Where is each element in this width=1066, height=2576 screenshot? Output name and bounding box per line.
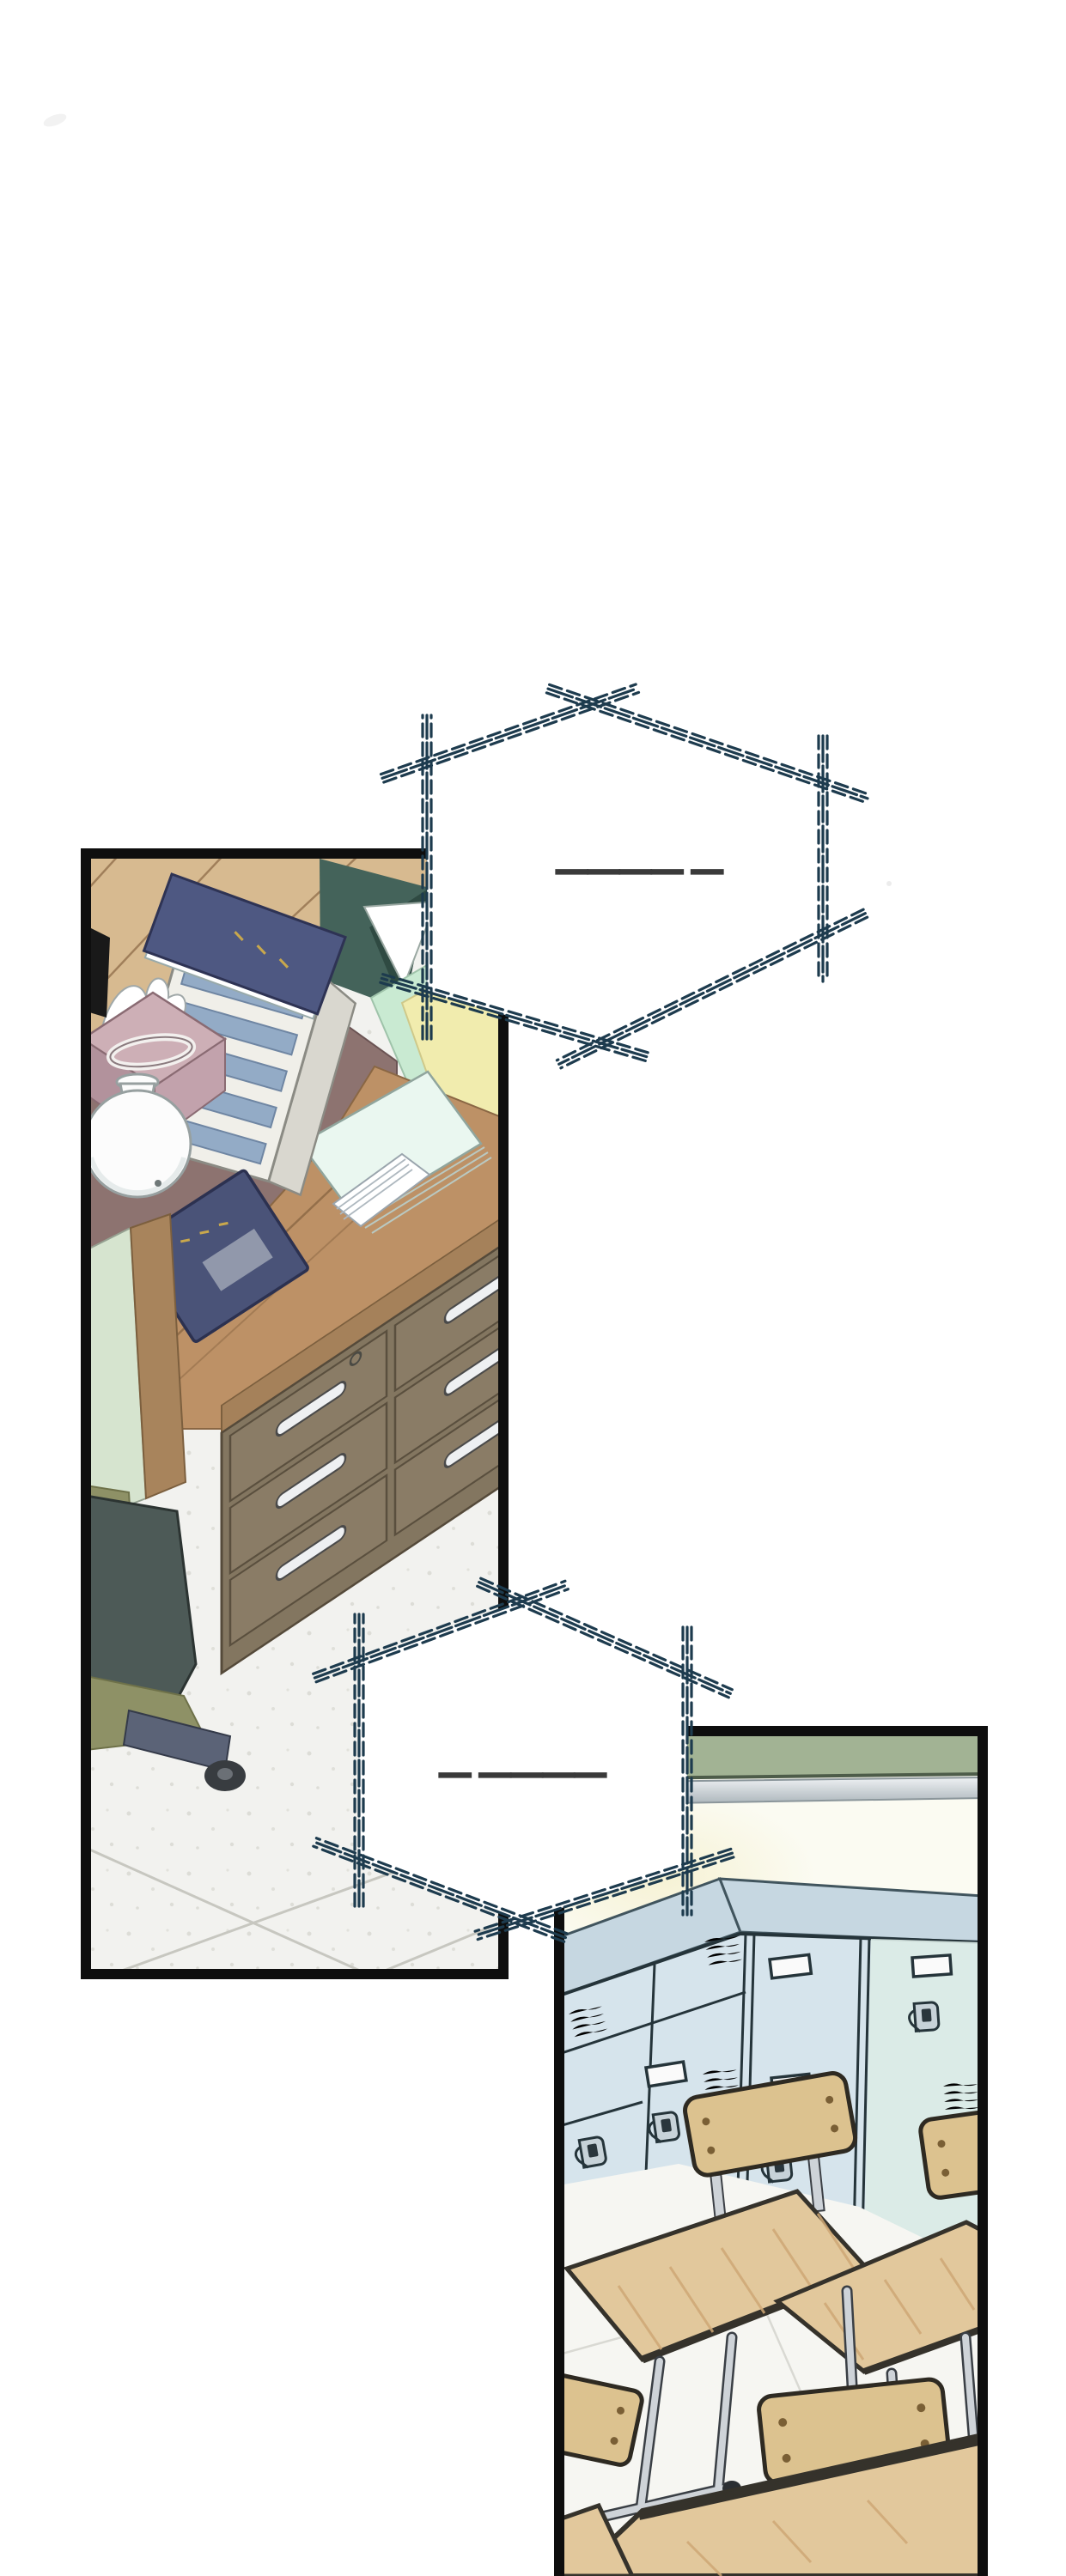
bubble-1-redacted-text: ———— —: [512, 848, 763, 892]
page-smudge: [42, 112, 68, 130]
bubble-2-redacted-text: — ————: [393, 1751, 648, 1795]
webtoon-page: ———— — — ————: [0, 0, 1066, 2576]
